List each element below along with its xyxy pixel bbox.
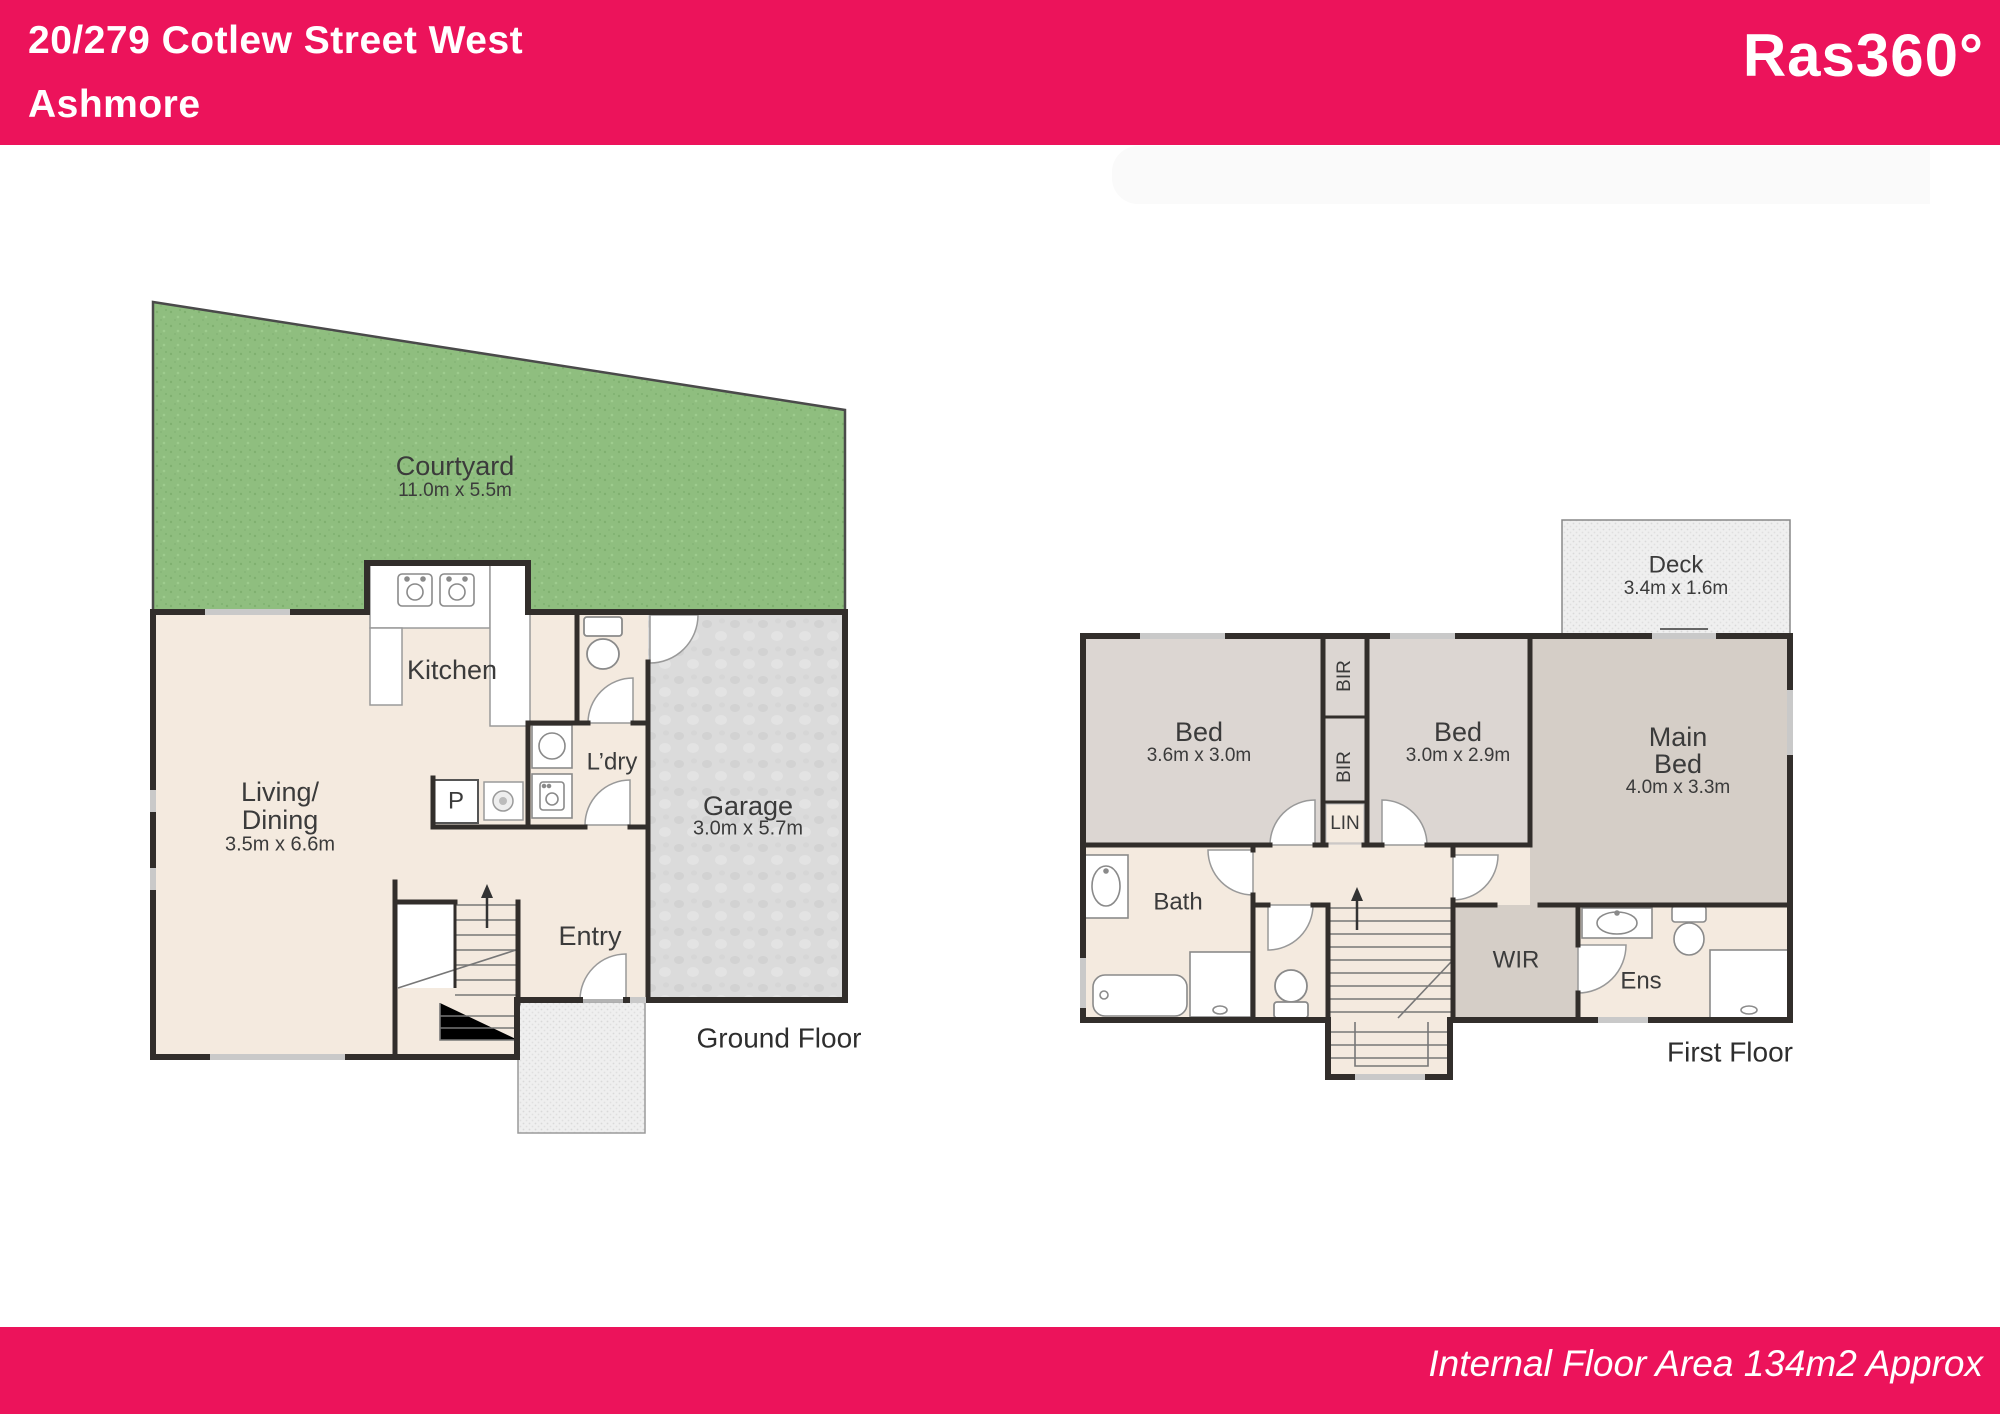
kitchen-label: Kitchen — [407, 656, 497, 684]
ground-floor-plan — [153, 302, 845, 1133]
laundry-label: L’dry — [587, 749, 638, 774]
brand-logo: Ras360° — [1743, 26, 1984, 86]
bir-top-label: BIR — [1335, 660, 1355, 692]
garage-label: Garage — [703, 792, 793, 820]
address-line2: Ashmore — [28, 85, 201, 124]
ens-label: Ens — [1620, 968, 1661, 993]
floorplan-graphics — [0, 0, 2000, 1414]
courtyard-dims: 11.0m x 5.5m — [398, 481, 512, 501]
floorplan-page: Courtyard 11.0m x 5.5m Kitchen Living/ D… — [0, 0, 2000, 1414]
courtyard-label: Courtyard — [396, 452, 515, 480]
main-bed-label-line1: Main — [1649, 723, 1708, 751]
bed1-label: Bed — [1175, 718, 1223, 746]
floor-area-note: Internal Floor Area 134m2 Approx — [1428, 1342, 1983, 1386]
living-dims: 3.5m x 6.6m — [225, 835, 335, 856]
living-label-line2: Dining — [242, 806, 319, 834]
linen-label: LIN — [1330, 814, 1360, 834]
address-line1: 20/279 Cotlew Street West — [28, 21, 523, 60]
bed2-dims: 3.0m x 2.9m — [1406, 746, 1511, 766]
header-bar: 20/279 Cotlew Street West Ashmore Ras360… — [0, 0, 2000, 145]
pantry-label: P — [448, 788, 464, 813]
deck-dims: 3.4m x 1.6m — [1624, 579, 1729, 599]
bed2-label: Bed — [1434, 718, 1482, 746]
main-bed-label-line2: Bed — [1654, 750, 1702, 778]
living-label-line1: Living/ — [241, 778, 319, 806]
garage-dims: 3.0m x 5.7m — [693, 819, 803, 840]
first-floor-label: First Floor — [1667, 1037, 1793, 1066]
bir-bottom-label: BIR — [1335, 751, 1355, 783]
main-bed-dims: 4.0m x 3.3m — [1626, 778, 1731, 798]
porch-area — [518, 1002, 645, 1133]
stove-icon — [484, 782, 523, 820]
first-floor-plan — [1083, 520, 1790, 1077]
entry-label: Entry — [558, 922, 621, 950]
deck-label: Deck — [1649, 552, 1704, 577]
wir-label: WIR — [1493, 947, 1540, 972]
bath-label: Bath — [1153, 889, 1202, 914]
toilet-icon-wc — [1274, 970, 1308, 1018]
ground-floor-label: Ground Floor — [697, 1023, 862, 1052]
bed1-dims: 3.6m x 3.0m — [1147, 746, 1252, 766]
